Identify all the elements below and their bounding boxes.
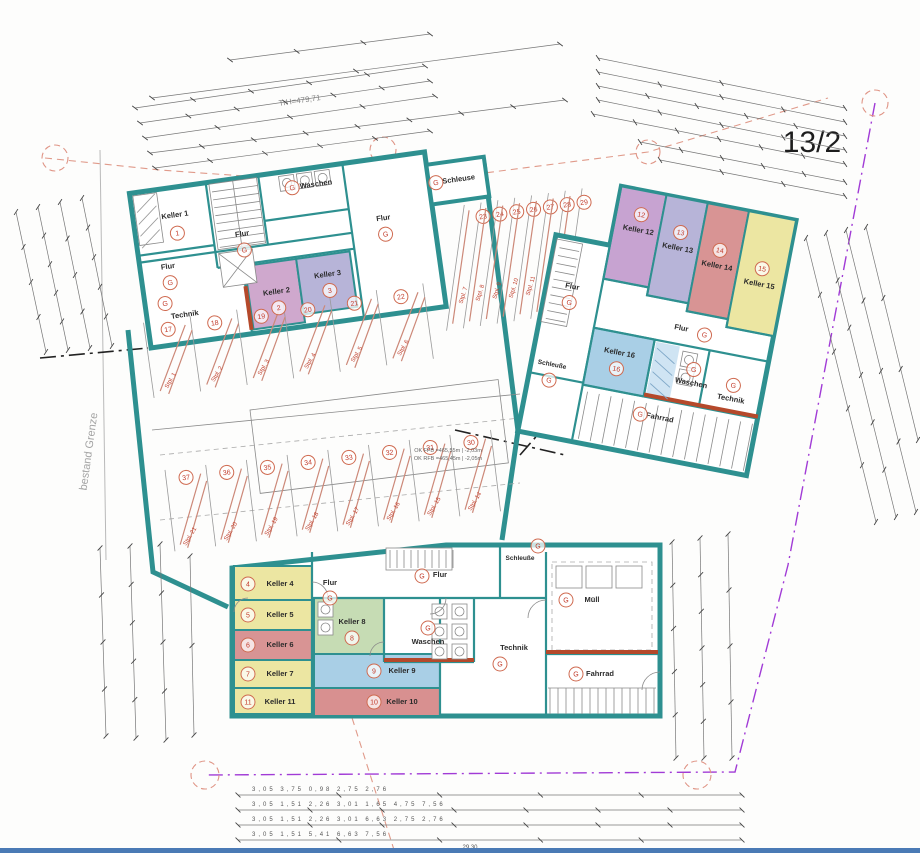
room-label: Flur	[323, 578, 337, 587]
room-label: Keller 4	[266, 579, 294, 588]
parking-badge-number: 27	[546, 204, 555, 212]
room-badge-number: G	[419, 573, 424, 580]
room-badge-number: G	[167, 280, 173, 288]
room-badge-number: 14	[715, 247, 724, 255]
washer-icon	[432, 644, 447, 659]
parking-badge-number: 24	[496, 211, 505, 219]
room-badge-number: 7	[246, 671, 250, 678]
parking-badge-number: 18	[211, 320, 220, 328]
floor-plan-canvas: 17Stpl. 118Stpl. 219Stpl. 320Stpl. 421St…	[0, 0, 920, 853]
room-badge-number: G	[162, 301, 168, 309]
room-label: Flur	[433, 570, 447, 579]
room-badge-number: G	[563, 597, 568, 604]
parking-badge-number: 23	[479, 213, 488, 221]
room-label: Keller 8	[338, 617, 365, 626]
parking-badge-number: 36	[223, 469, 232, 477]
waste-container	[586, 566, 612, 588]
parking-badge-number: 33	[345, 454, 354, 462]
room-badge-number: G	[289, 185, 295, 193]
washer-icon	[318, 620, 333, 635]
room-label: Fahrrad	[586, 669, 614, 678]
room-badge-number: G	[241, 247, 247, 255]
room-badge-number: 10	[370, 699, 378, 706]
room-label: OK RFB =465,45m | -2,05m	[414, 456, 483, 462]
floor-plan-sheet: 17Stpl. 118Stpl. 219Stpl. 320Stpl. 421St…	[0, 0, 920, 853]
washer-icon	[452, 604, 467, 619]
room-badge-number: G	[425, 625, 430, 632]
accent-wall-bike	[546, 650, 658, 654]
washer-icon	[432, 604, 447, 619]
room-label: Keller 10	[386, 697, 417, 706]
waste-container	[556, 566, 582, 588]
parking-badge-number: 26	[529, 206, 538, 214]
room-badge-number: 11	[244, 699, 251, 706]
room-badge-number: 15	[758, 265, 767, 273]
room-badge-number: G	[497, 661, 502, 668]
room-badge-number: 4	[246, 581, 250, 588]
parking-badge-number: 35	[263, 464, 272, 472]
parking-badge-number: 29	[580, 199, 589, 207]
parking-badge-number: 20	[304, 307, 313, 315]
parking-badge-number: 32	[385, 449, 394, 457]
room-label: 3,05 3,75 0,98 2,75 2,76	[252, 787, 389, 793]
room-label: Keller 6	[266, 640, 293, 649]
parking-badge-number: 25	[512, 209, 521, 217]
room-badge-number: G	[573, 671, 578, 678]
room-badge-number: G	[535, 543, 540, 550]
room-badge-number: 8	[350, 635, 354, 642]
waste-container	[616, 566, 642, 588]
parking-badge-number: 21	[350, 300, 359, 308]
room-label: 3,05 1,51 5,41 6,63 7,56	[252, 832, 389, 838]
parking-badge-number: 17	[164, 326, 173, 334]
room-label: Technik	[500, 643, 529, 652]
room-badge-number: G	[433, 180, 439, 188]
parking-badge-number: 22	[397, 294, 406, 302]
room-label: 3,05 1,51 2,26 3,01 1,65 4,75 7,56	[252, 802, 446, 808]
room-label: Keller 7	[266, 669, 293, 678]
parking-badge-number: 37	[182, 474, 191, 482]
washer-icon	[452, 624, 467, 639]
staircase-bottom	[386, 548, 452, 570]
room-badge-number: 16	[612, 365, 621, 373]
room-label: OK FFB =465,55m | -2,03m	[414, 448, 482, 454]
room-label: Keller 11	[265, 697, 296, 706]
parking-badge-number: 34	[304, 459, 313, 467]
parking-badge-number: 30	[467, 439, 476, 447]
room-label: 3,05 1,51 2,26 3,01 6,63 2,75 2,76	[252, 817, 446, 823]
room-badge-number: 6	[246, 642, 250, 649]
washer-icon	[452, 644, 467, 659]
room-label: 13/2	[783, 126, 841, 159]
room-label: Keller 5	[266, 610, 293, 619]
parking-badge-number: 28	[563, 201, 572, 209]
room-badge-number: G	[327, 595, 332, 602]
room-badge-number: 9	[372, 668, 376, 675]
room-badge-number: G	[383, 231, 389, 239]
room-label: Waschen	[412, 637, 445, 646]
window-edge-strip	[0, 848, 920, 853]
room-badge-number: 13	[676, 229, 685, 237]
room-label: Keller 9	[388, 666, 415, 675]
room-badge-number: 12	[637, 211, 646, 219]
parking-badge-number: 19	[257, 313, 266, 321]
room-label: Schleuße	[506, 555, 535, 562]
room-label: Müll	[585, 595, 600, 604]
room-badge-number: 5	[246, 612, 250, 619]
